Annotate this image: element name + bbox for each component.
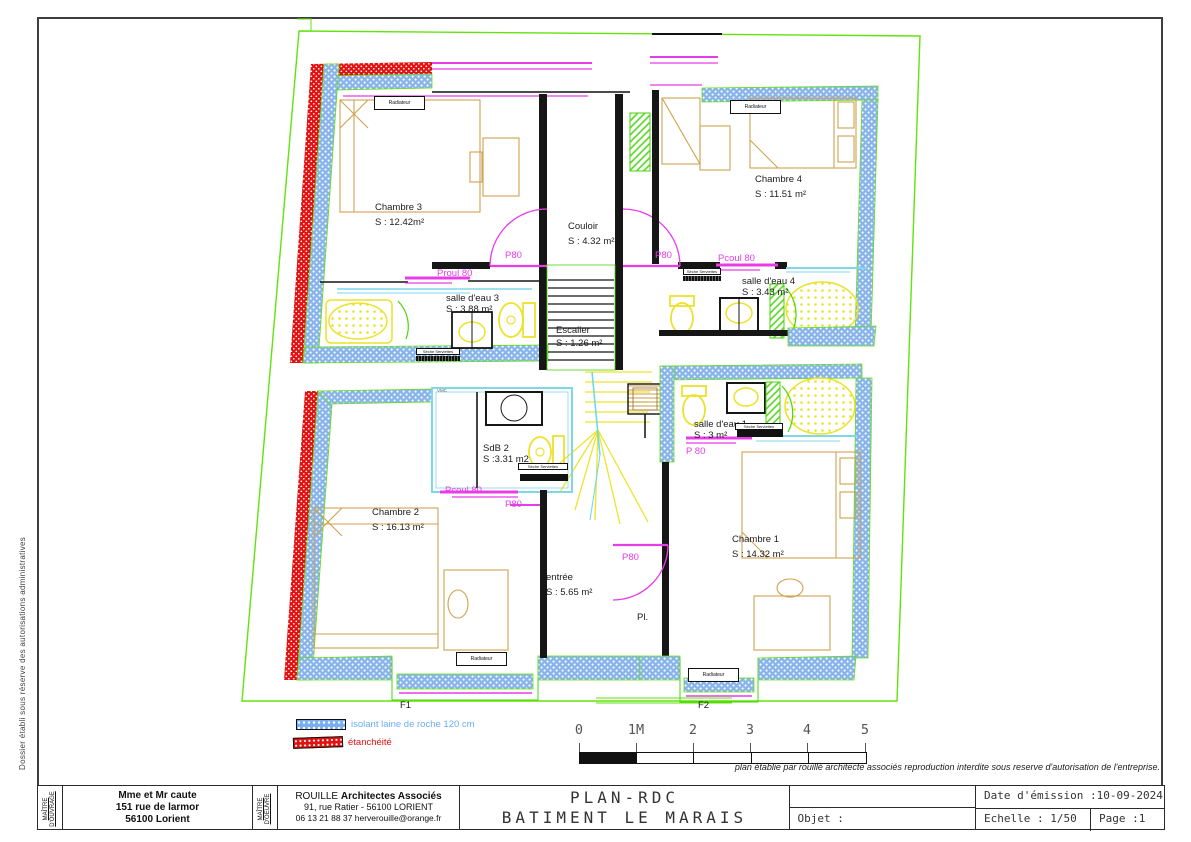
architect-info-cell: ROUILLE Architectes Associés 91, rue Rat… [277, 785, 461, 830]
unit-upper-right [630, 34, 878, 346]
radiateur-label-chambre3: Radiateur [374, 96, 425, 110]
radiateur-label-chambre4: Radiateur [730, 100, 781, 114]
page-cell: Page :1 [1090, 809, 1166, 832]
legend-etancheite: étanchéité [293, 737, 392, 748]
seche-serviettes-sdb2: Sèche Serviettes [518, 463, 568, 470]
seche-serviettes-salle-eau-3: Sèche Serviettes [416, 348, 460, 361]
seche-serviettes-salle-eau-4: Sèche Serviettes [683, 268, 721, 281]
room-label-entree: entrée S : 5.65 m² [546, 571, 592, 600]
drawing-sheet: Dossier établi sous réserve des autorisa… [0, 0, 1191, 842]
room-label-chambre3: Chambre 3 S : 12.42m² [375, 201, 424, 230]
door-label-p80-upper-right: P80 [655, 250, 672, 261]
drawing-title-cell: PLAN-RDC BATIMENT LE MARAIS [459, 785, 790, 830]
room-label-salle-eau-3: salle d'eau 3 S : 3.88 m² [446, 293, 499, 316]
title-block: MAÎTRE D'OUVRAGE Mme et Mr caute 151 rue… [37, 785, 1165, 830]
legend-swatch-etancheite [293, 736, 343, 749]
legend-swatch-isolant [296, 719, 346, 730]
room-label-salle-eau-4: salle d'eau 4 S : 3.43 m² [742, 276, 795, 299]
room-label-chambre2: Chambre 2 S : 16.13 m² [372, 506, 424, 535]
room-label-chambre4: Chambre 4 S : 11.51 m² [755, 173, 806, 202]
door-label-p80-sdb2: P80 [505, 499, 522, 510]
seche-serviettes-bar [416, 356, 460, 361]
drawing-title-line1: PLAN-RDC [570, 788, 679, 808]
radiateur-label-chambre1: Radiateur [688, 668, 739, 682]
window-label-f1: F1 [400, 700, 411, 711]
door-label-p80-salle-eau-1: P 80 [686, 446, 705, 457]
radiateur-label-chambre2: Radiateur [456, 652, 507, 666]
vmc-label: VMC [437, 388, 447, 393]
drawing-title-line2: BATIMENT LE MARAIS [502, 808, 747, 828]
unit-upper-left [290, 62, 630, 363]
date-echelle-page-cell: Date d'émission :10-09-2024 Echelle : 1/… [975, 785, 1165, 830]
room-label-placard: Pl. [637, 611, 648, 626]
owner-role-cell: MAÎTRE D'OUVRAGE [37, 785, 63, 830]
owner-info-cell: Mme et Mr caute 151 rue de larmor 56100 … [62, 785, 254, 830]
room-label-chambre1: Chambre 1 S : 14.32 m² [732, 533, 784, 562]
copyright-line: plan établie par rouillé architecte asso… [560, 762, 1160, 772]
door-label-pcoul80-sdb2: Pcoul 80 [445, 485, 482, 496]
door-label-p80-upper-left: P80 [505, 250, 522, 261]
legend-isolant: isolant laine de roche 120 cm [296, 719, 475, 730]
date-cell: Date d'émission :10-09-2024 [976, 786, 1164, 809]
floor-plan-drawing [0, 0, 1191, 842]
window-label-f2: F2 [698, 700, 709, 711]
architect-role-cell: MAÎTRE D'OEUVRE [252, 785, 278, 830]
echelle-cell: Echelle : 1/50 [976, 809, 1090, 832]
seche-serviettes-bar [683, 276, 721, 281]
room-label-couloir: Couloir S : 4.32 m² [568, 220, 614, 249]
objet-cell: Objet : [789, 785, 977, 830]
door-label-pcoul80-upper-right: Pcoul 80 [718, 253, 755, 264]
room-label-escalier: Escalier S : 1.26 m² [556, 324, 602, 351]
unit-lower-right [540, 364, 872, 702]
door-label-proul80: Proul 80 [437, 268, 472, 279]
seche-serviettes-salle-eau-1: Sèche Serviettes [735, 423, 783, 430]
scale-bar: 0 1M 2 3 4 5 [578, 722, 870, 764]
side-note-vertical: Dossier établi sous réserve des autorisa… [18, 470, 34, 770]
door-label-p80-entree: P80 [622, 552, 639, 563]
